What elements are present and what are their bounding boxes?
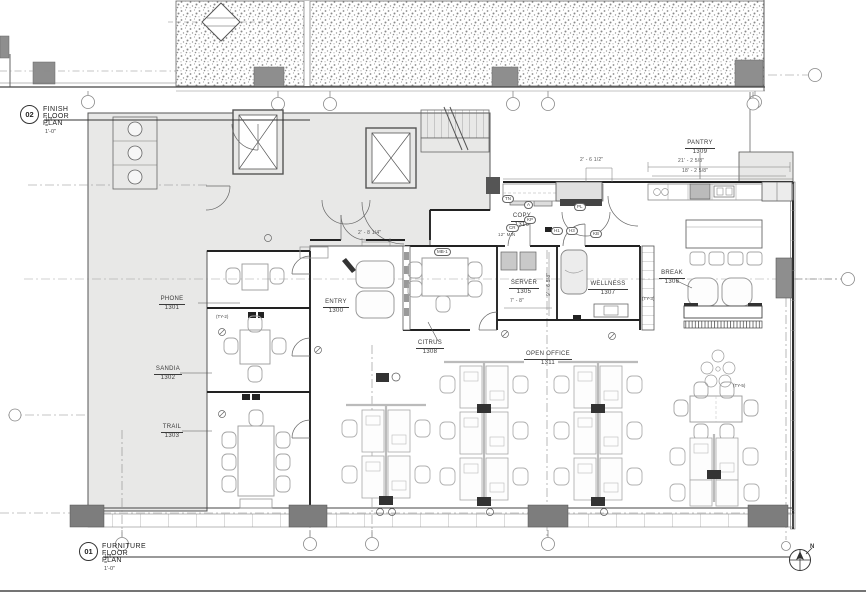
plant bbox=[701, 350, 735, 387]
scale-02: 1/4" = 1'-0" bbox=[45, 117, 56, 135]
furniture-plan bbox=[0, 69, 855, 571]
north-arrow-icon bbox=[790, 548, 813, 571]
window-wall-bottom bbox=[88, 514, 793, 527]
tag-kp: KP bbox=[524, 216, 536, 224]
tag-ty2: (TY-2) bbox=[216, 314, 228, 319]
column bbox=[776, 258, 792, 298]
workstations bbox=[342, 362, 759, 516]
tag-ty5: (TY-5) bbox=[733, 383, 745, 388]
plan-drawing bbox=[0, 0, 866, 597]
room-label-trail: TRAIL1303 bbox=[146, 424, 198, 441]
dim-pantry: 2' - 6 1/2" bbox=[580, 157, 603, 163]
room-label-phone: PHONE1301 bbox=[146, 296, 198, 313]
dim-break-bottom: 18' - 2 5/8" bbox=[682, 168, 708, 174]
room-label-server: SERVER1305 bbox=[500, 280, 548, 297]
dim-min-clearance: 12" MIN bbox=[498, 232, 516, 237]
dim-server-depth: 9' - 6 5/8" bbox=[546, 273, 552, 296]
island bbox=[686, 220, 762, 248]
room-label-sandia: SANDIA1302 bbox=[142, 366, 194, 383]
grid-bubbles-top bbox=[82, 91, 762, 111]
room-label-open-office: OPEN OFFICE1311 bbox=[516, 351, 580, 368]
column bbox=[33, 62, 55, 84]
detail-number-01: 01 bbox=[79, 542, 98, 561]
floor-plan-sheet: 02 FINISH FLOOR PLAN 1/4" = 1'-0" 01 FUR… bbox=[0, 0, 866, 597]
column bbox=[492, 67, 518, 87]
room-label-wellness: WELLNESS1307 bbox=[580, 281, 636, 298]
detail-number-02: 02 bbox=[20, 105, 39, 124]
dim-break-top: 21' - 2 5/8" bbox=[678, 158, 704, 164]
banquette bbox=[684, 306, 762, 318]
tag-h1: H1 bbox=[551, 227, 563, 235]
window-wall-right bbox=[791, 182, 796, 529]
tag-tn: TN bbox=[502, 195, 514, 203]
room-label-pantry: PANTRY1309 bbox=[676, 140, 724, 157]
elevator-shaft bbox=[366, 128, 416, 188]
dim-entry: 2' - 8 1/4" bbox=[358, 230, 381, 236]
tag-pl: PL bbox=[574, 203, 586, 211]
dishwasher bbox=[690, 184, 710, 199]
column bbox=[486, 177, 500, 194]
tag-h3: H3 bbox=[566, 227, 578, 235]
column bbox=[735, 60, 763, 86]
citrus-glazing bbox=[403, 246, 410, 330]
tag-mb1: MB-1 bbox=[434, 248, 451, 256]
scale-01: 1/4" = 1'-0" bbox=[104, 554, 115, 572]
tag-ty3: (TY-3) bbox=[642, 296, 654, 301]
room-label-break: BREAK1306 bbox=[650, 270, 694, 287]
column bbox=[254, 67, 284, 87]
room-label-citrus: CITRUS1308 bbox=[406, 340, 454, 357]
tag-kb: KB bbox=[590, 230, 602, 238]
dim-server-width: 7' - 8" bbox=[510, 298, 524, 304]
shelving bbox=[642, 246, 654, 330]
stair bbox=[421, 107, 489, 152]
north-label: N bbox=[810, 544, 814, 550]
room-label-entry: ENTRY1300 bbox=[312, 299, 360, 316]
tag-cr: CR bbox=[506, 224, 519, 232]
finish-plan-strip bbox=[0, 0, 765, 111]
fixture bbox=[128, 122, 142, 136]
